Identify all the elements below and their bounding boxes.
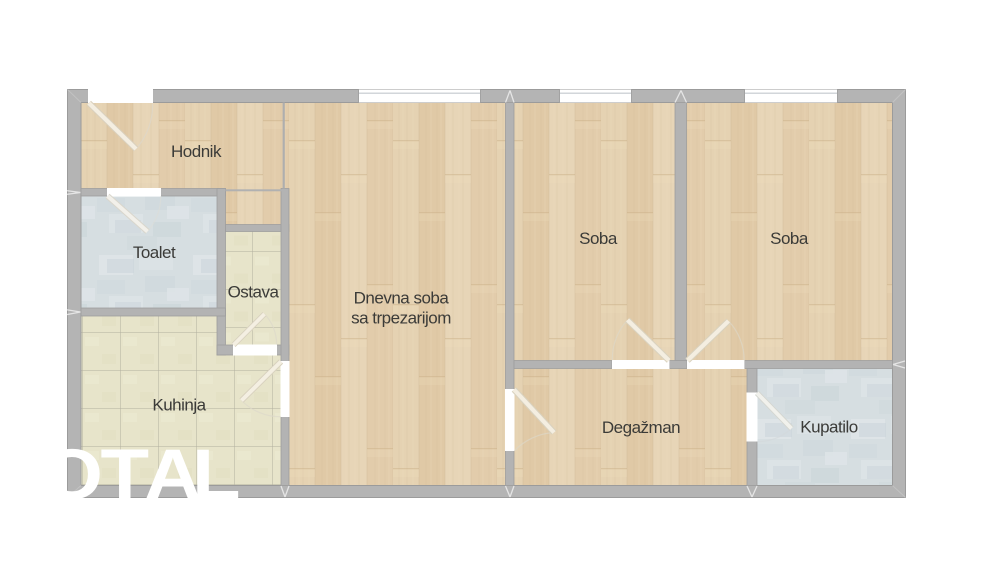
svg-text:L: L [192,435,241,514]
svg-text:Kupatilo: Kupatilo [800,418,857,437]
svg-text:Hodnik: Hodnik [171,142,222,161]
svg-text:Soba: Soba [579,229,618,248]
svg-text:Ostava: Ostava [228,283,280,302]
svg-text:Soba: Soba [770,229,809,248]
svg-text:sa trpezarijom: sa trpezarijom [351,309,451,328]
svg-text:T: T [100,435,149,514]
svg-text:Dnevna soba: Dnevna soba [354,289,450,308]
svg-text:Toalet: Toalet [133,243,176,262]
svg-text:Kuhinja: Kuhinja [152,396,206,415]
svg-text:Degažman: Degažman [602,418,680,437]
svg-text:O: O [41,435,103,514]
